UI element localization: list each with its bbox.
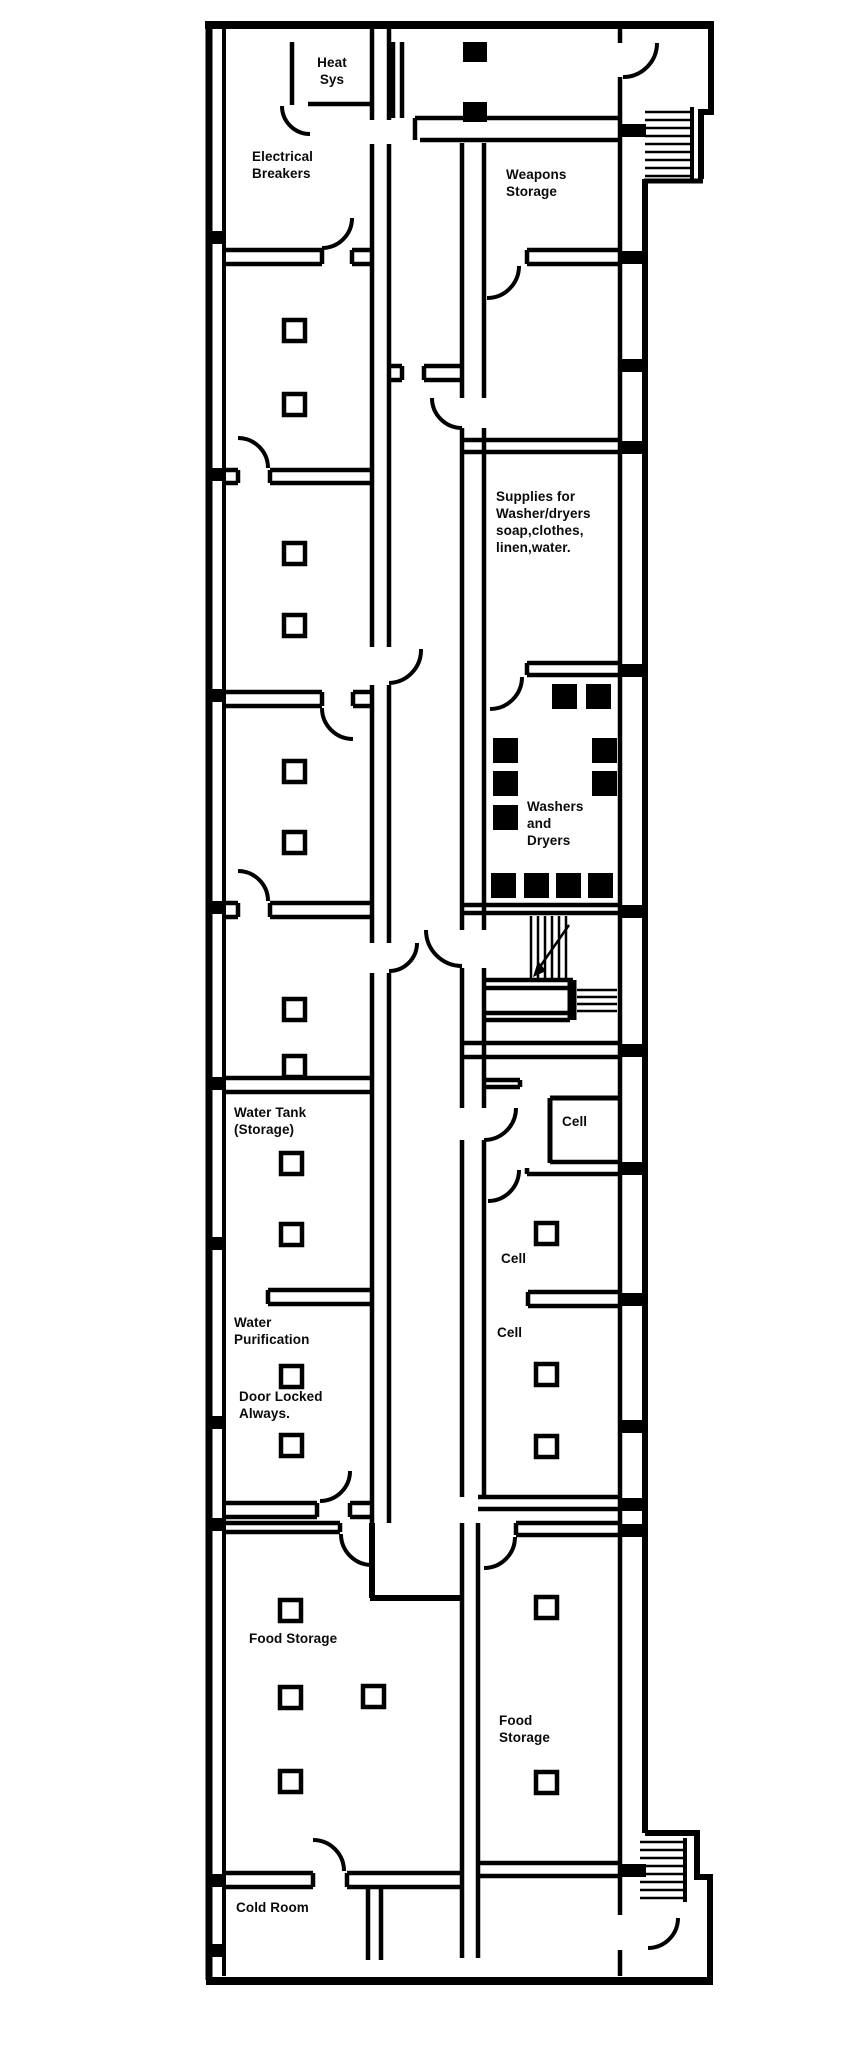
washer-dryer-icons: [491, 684, 617, 898]
door-room-4: [238, 871, 268, 901]
door-central-stairs: [426, 930, 462, 966]
room-label-cell-middle: Cell: [501, 1250, 526, 1267]
door-heat-sys: [282, 106, 310, 134]
door-water-purification: [320, 1471, 350, 1501]
door-food-storage-left: [341, 1534, 372, 1565]
floor-plan: Heat Sys Electrical Breakers Weapons Sto…: [0, 0, 866, 2060]
door-corridor-left-1: [389, 649, 421, 683]
door-cold-room: [313, 1840, 344, 1871]
door-room-3: [322, 708, 353, 739]
door-corridor-left-2: [389, 943, 417, 971]
room-label-washers-dryers: Washers and Dryers: [527, 798, 583, 849]
door-electrical-breakers: [322, 218, 352, 248]
room-label-supplies: Supplies for Washer/dryers soap,clothes,…: [496, 488, 591, 556]
door-cell-vestibule: [484, 1108, 516, 1140]
staircase-top-right: [645, 107, 692, 179]
door-corridor-right-1: [432, 398, 462, 428]
room-label-heat-sys: Heat Sys: [303, 54, 361, 88]
room-label-weapons-storage: Weapons Storage: [506, 166, 566, 200]
room-walls-left: [224, 42, 462, 1887]
door-cell-middle: [488, 1170, 519, 1201]
room-label-food-storage-right: Food Storage: [499, 1712, 550, 1746]
door-weapons-storage: [487, 266, 519, 298]
door-food-storage-right: [484, 1537, 515, 1568]
room-label-cold-room: Cold Room: [236, 1899, 309, 1916]
floor-plan-drawing: [0, 0, 866, 2060]
door-bottom-stairwell: [648, 1918, 678, 1948]
room-label-electrical-breakers: Electrical Breakers: [252, 148, 313, 182]
door-room-2: [238, 438, 268, 468]
door-washers-room: [490, 677, 522, 709]
wall-pilasters-top: [463, 42, 487, 122]
room-label-food-storage-left: Food Storage: [249, 1630, 337, 1647]
room-label-door-locked-note: Door Locked Always.: [239, 1388, 323, 1422]
room-label-cell-lower: Cell: [497, 1324, 522, 1341]
room-label-water-tank: Water Tank (Storage): [234, 1104, 306, 1138]
wall-pilasters-right: [619, 124, 646, 1877]
door-top-stairwell: [623, 43, 657, 77]
corridor-walls: [368, 28, 620, 1960]
room-label-water-purification: Water Purification: [234, 1314, 309, 1348]
staircase-bottom-right: [640, 1838, 685, 1902]
room-label-cell-top: Cell: [562, 1113, 587, 1130]
